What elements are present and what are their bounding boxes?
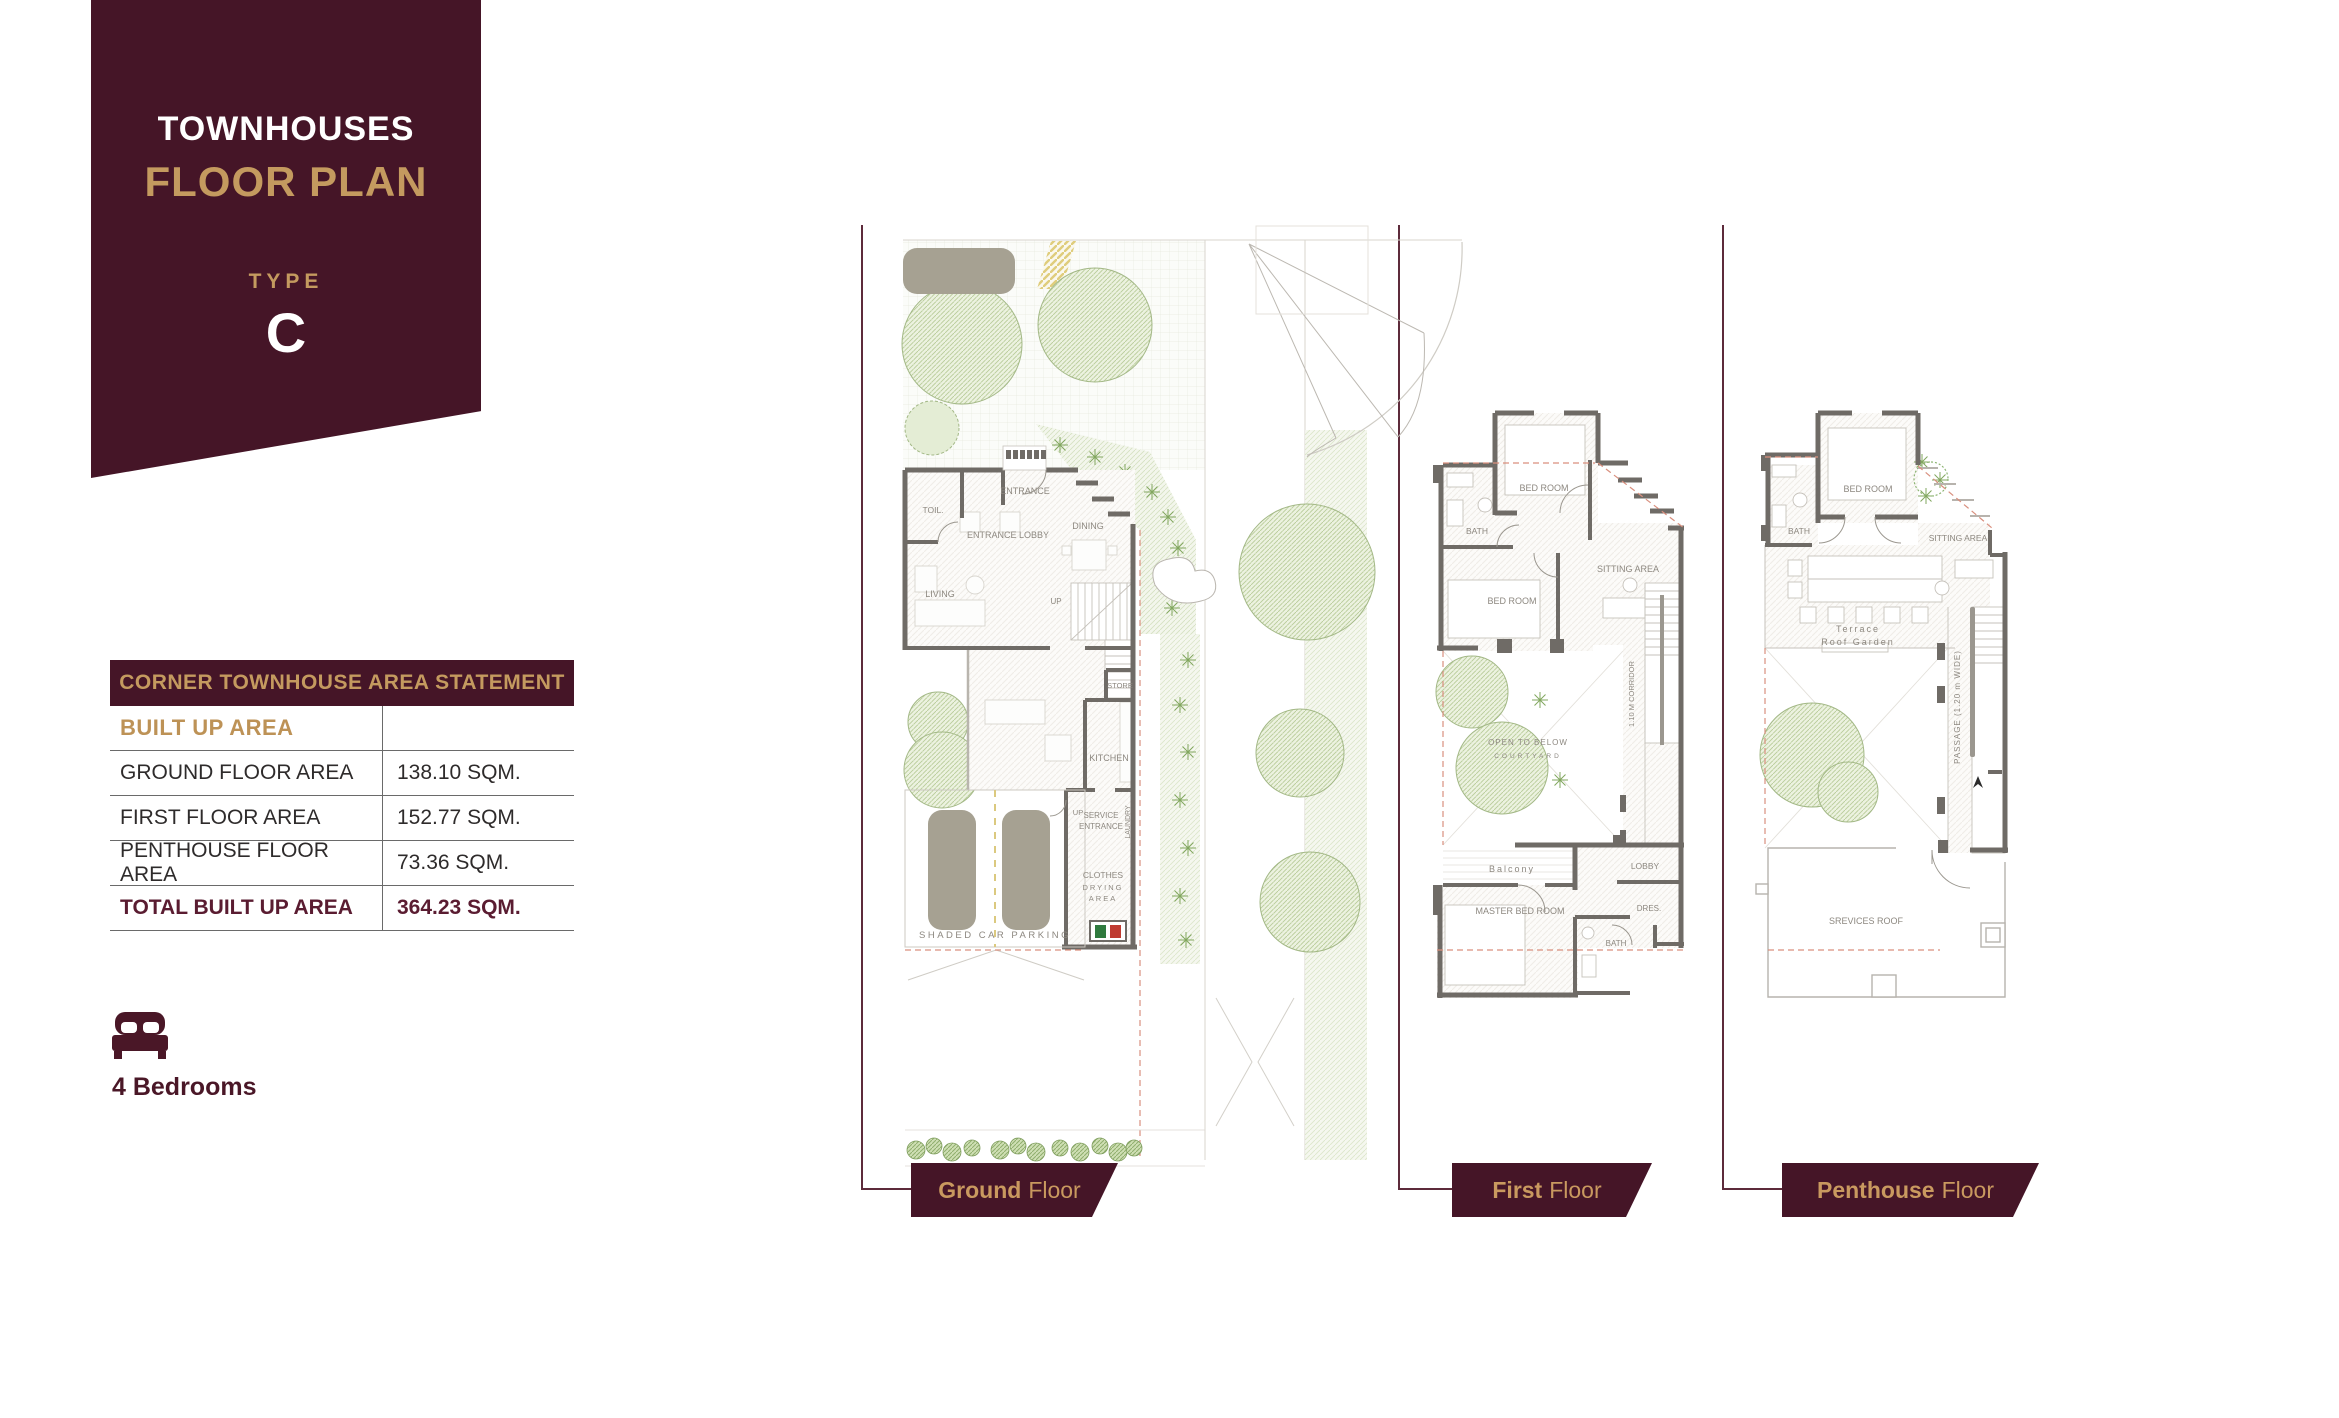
room-label: BED ROOM [1843, 484, 1892, 494]
floor-tab-label-bold: Ground [938, 1177, 1021, 1204]
room-label: Roof Garden [1821, 637, 1895, 647]
banner-type-label: TYPE [91, 270, 481, 294]
room-label: SITTING AREA [1597, 564, 1659, 574]
floor-tab-label-bold: Penthouse [1817, 1177, 1935, 1204]
floor-tab-penthouse: Penthouse Floor [1782, 1163, 2039, 1217]
room-label: BATH [1788, 526, 1810, 536]
courtyard [1436, 651, 1623, 845]
room-label: OPEN TO BELOW [1488, 738, 1568, 747]
table-header: CORNER TOWNHOUSE AREA STATEMENT [110, 660, 574, 706]
room-label: STORE [1107, 681, 1133, 690]
row-label: FIRST FLOOR AREA [110, 796, 383, 840]
waste-bins [1090, 921, 1126, 941]
neighbor-building [1256, 226, 1368, 314]
room-label: SHADED CAR PARKING [919, 930, 1071, 941]
room-label: DRES. [1637, 904, 1661, 913]
road-markings [1216, 998, 1294, 1126]
room-label: 1.10 M CORRIDOR [1627, 661, 1636, 727]
banner-title: TOWNHOUSES [91, 110, 481, 149]
table-row: FIRST FLOOR AREA 152.77 SQM. [110, 796, 574, 841]
entrance-porch [1003, 446, 1046, 470]
floor-tab-ground: Ground Floor [911, 1163, 1118, 1217]
title-banner: TOWNHOUSES FLOOR PLAN TYPE C [91, 0, 481, 478]
floor-tab-first: First Floor [1452, 1163, 1652, 1217]
table-row: GROUND FLOOR AREA 138.10 SQM. [110, 751, 574, 796]
total-label: TOTAL BUILT UP AREA [110, 886, 383, 930]
room-label: KITCHEN [1089, 753, 1129, 763]
first-floor-plan: BED ROOM BATH BED ROOM SITTING AREA 1.10… [1433, 413, 1684, 998]
row-label: PENTHOUSE FLOOR AREA [110, 841, 383, 885]
room-label: SITTING AREA [1929, 533, 1988, 543]
room-label: DINING [1072, 521, 1104, 531]
floor-plans-canvas: TOIL. ENTRANCE ENTRANCE LOBBY DINING LIV… [850, 215, 2150, 1235]
parked-car [928, 810, 976, 930]
street-car [903, 248, 1015, 294]
banner-type-value: C [91, 300, 481, 365]
room-label: LOBBY [1631, 861, 1660, 871]
hedge [907, 1138, 1142, 1161]
table-total-row: TOTAL BUILT UP AREA 364.23 SQM. [110, 886, 574, 931]
room-label: COURTYARD [1494, 753, 1562, 760]
row-value: 73.36 SQM. [383, 841, 574, 885]
room-label: ENTRANCE [1000, 486, 1050, 496]
room-label: UP [1050, 597, 1061, 606]
room-label: BATH [1466, 526, 1488, 536]
penthouse-floor-plan: BED ROOM BATH SITTING AREA Terrace Roof … [1756, 413, 2008, 997]
room-label: BED ROOM [1487, 596, 1536, 606]
total-value: 364.23 SQM. [383, 886, 574, 930]
room-label: AREA [1089, 894, 1117, 903]
room-label: BATH [1606, 939, 1627, 948]
row-label: GROUND FLOOR AREA [110, 751, 383, 795]
table-row: PENTHOUSE FLOOR AREA 73.36 SQM. [110, 841, 574, 886]
room-label: SREVICES ROOF [1829, 916, 1904, 926]
area-statement-table: CORNER TOWNHOUSE AREA STATEMENT BUILT UP… [110, 660, 574, 931]
row-value: 138.10 SQM. [383, 751, 574, 795]
room-label: BED ROOM [1519, 483, 1568, 493]
roof-garden [1760, 648, 1948, 848]
room-label: SERVICE [1084, 811, 1119, 820]
room-label: Terrace [1836, 624, 1880, 634]
room-label: LIVING [925, 589, 955, 599]
floor-tab-label-bold: First [1492, 1177, 1542, 1204]
room-label: UP [1073, 808, 1083, 817]
bedrooms-badge: 4 Bedrooms [112, 1012, 256, 1102]
room-label: CLOTHES [1083, 870, 1123, 880]
row-value: 152.77 SQM. [383, 796, 574, 840]
room-label: TOIL. [922, 505, 943, 515]
parking [905, 790, 1085, 980]
banner-subtitle: FLOOR PLAN [91, 158, 481, 206]
room-label: ENTRANCE [1079, 822, 1123, 831]
floor-tab-label-rest: Floor [1549, 1177, 1601, 1204]
bedrooms-count: 4 Bedrooms [112, 1073, 256, 1102]
room-label: MASTER BED ROOM [1475, 906, 1564, 916]
room-label: ENTRANCE LOBBY [967, 530, 1049, 540]
room-label: DRYING [1082, 883, 1123, 892]
parked-car [1002, 810, 1050, 930]
section-label: BUILT UP AREA [110, 706, 383, 750]
floor-tab-label-rest: Floor [1942, 1177, 1994, 1204]
ground-floor-plan: TOIL. ENTRANCE ENTRANCE LOBBY DINING LIV… [902, 226, 1462, 1166]
bed-icon [112, 1012, 168, 1060]
table-section-row: BUILT UP AREA [110, 706, 574, 751]
floor-tab-label-rest: Floor [1028, 1177, 1080, 1204]
room-label: LAUNDRY [1125, 805, 1132, 839]
room-label: PASSAGE (1.20 m WIDE) [1953, 650, 1962, 764]
room-label: Balcony [1489, 864, 1535, 874]
